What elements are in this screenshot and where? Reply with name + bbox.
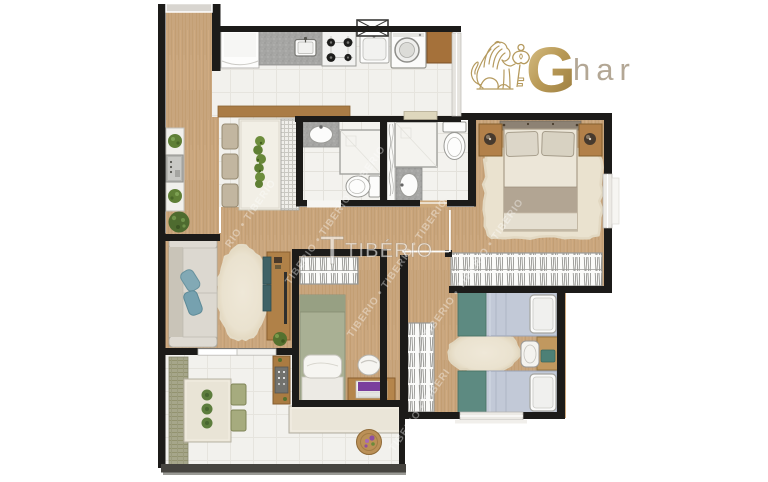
svg-text:T: T [320, 229, 344, 273]
svg-text:har: har [573, 52, 636, 87]
svg-text:G: G [526, 34, 576, 106]
svg-text:TIBÉRIO: TIBÉRIO [345, 239, 433, 262]
